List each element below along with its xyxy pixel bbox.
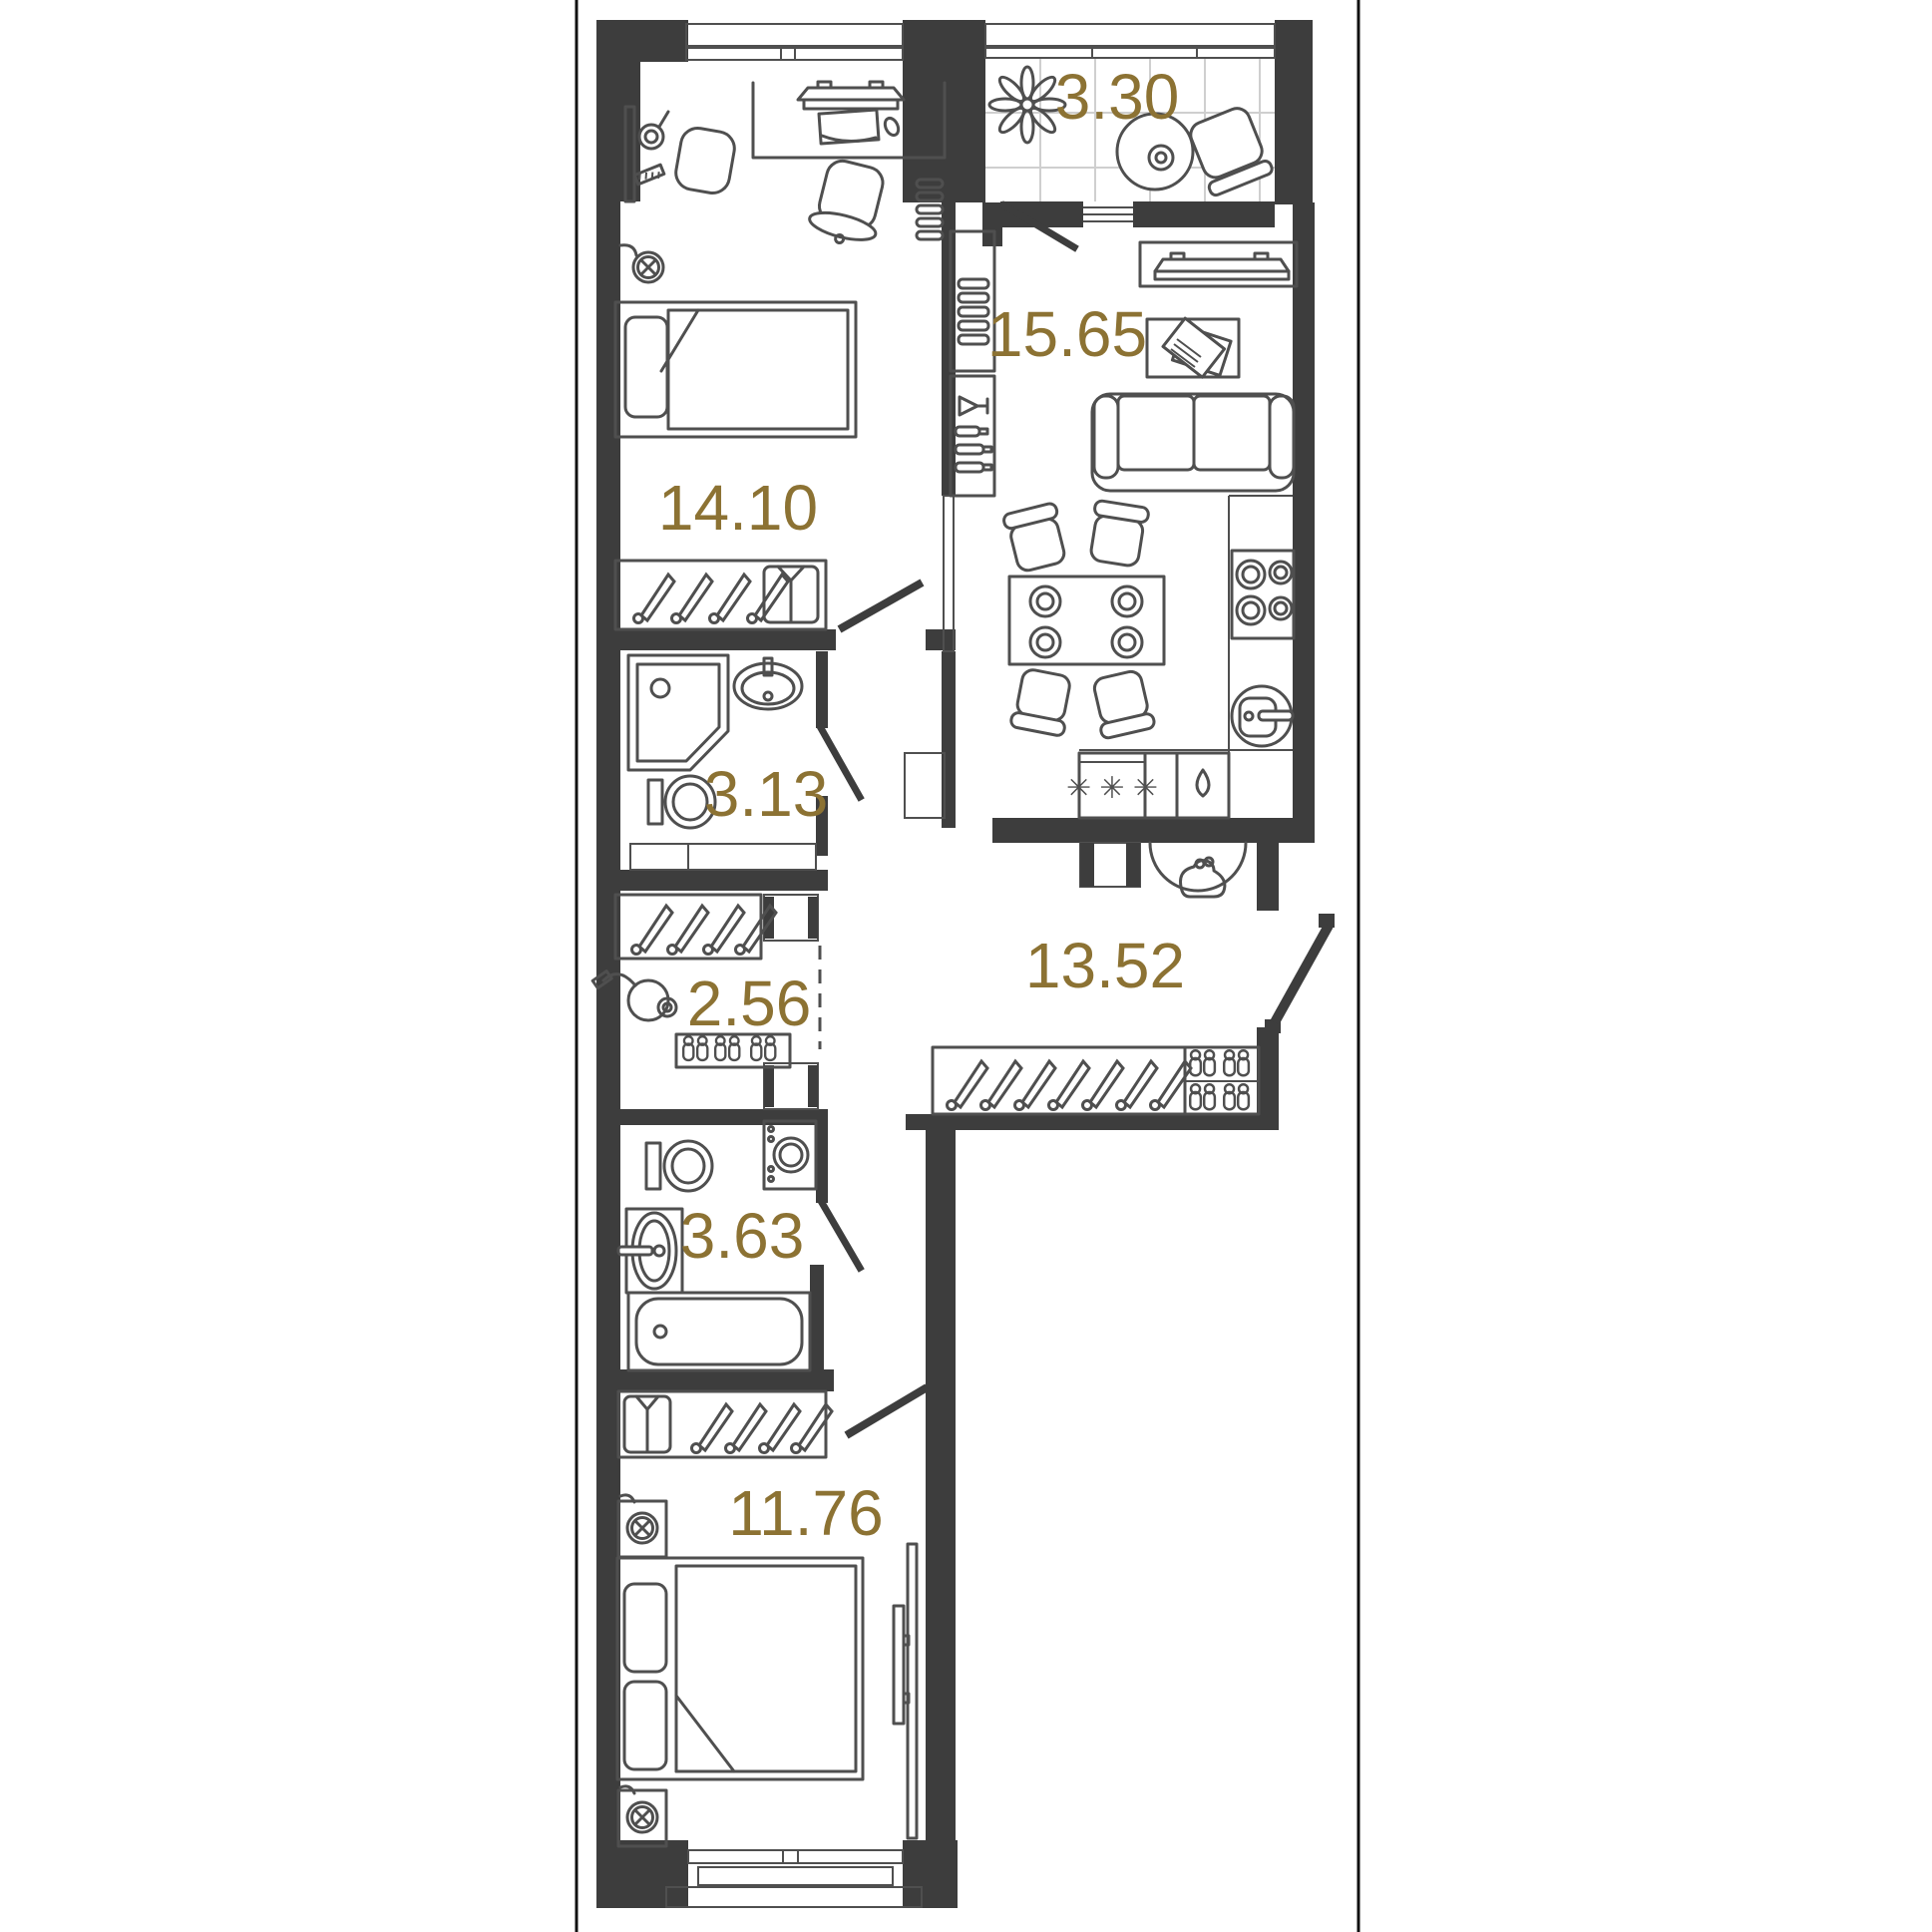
bedroom2-wardrobe-icon [618, 1391, 832, 1457]
area-label-loggia: 3.30 [1055, 61, 1180, 133]
desk-chair-icon [806, 157, 892, 251]
entry-niche [1150, 843, 1246, 897]
folded-shirt-icon [624, 1396, 670, 1452]
washing-machine-icon [764, 1121, 816, 1189]
storage-rail-icon [615, 895, 776, 959]
shower-sink-icon [734, 658, 802, 709]
bedroom1-drying-rack-icon [917, 180, 943, 239]
wall-hallway-bottom [906, 1114, 1279, 1130]
area-label-shower-room: 3.13 [704, 758, 829, 830]
wall-bedroom1-kitchen [942, 202, 956, 496]
bar-shelf-icon [951, 376, 994, 496]
partition-kitchen-column [944, 496, 954, 651]
wall-storage-bathroom [596, 1109, 828, 1125]
area-label-bedroom-1: 14.10 [658, 472, 818, 544]
coffee-table-icon [1147, 318, 1239, 377]
wall-bedroom1-bottom [596, 629, 836, 650]
pouf-icon [673, 126, 737, 195]
bedroom1-bed-icon [615, 302, 856, 437]
bathroom-door-leaf [821, 1201, 860, 1268]
bedroom1-door-leaf [843, 584, 919, 627]
room-area-labels: 14.10 3.30 15.65 3.13 2.56 13.52 3.63 11… [658, 61, 1185, 1549]
window-balcony [985, 24, 1275, 58]
tv-stand-icon [1140, 242, 1297, 286]
wall-balcony-kitchen [1000, 201, 1275, 227]
area-label-storage: 2.56 [687, 967, 812, 1039]
hallway-furniture [933, 1047, 1259, 1114]
area-label-kitchen-living: 15.65 [987, 298, 1147, 370]
bedroom1-furniture [615, 82, 945, 629]
entrance-door-leaf [1275, 926, 1329, 1022]
wall-bottom-left-block [596, 1840, 688, 1908]
wall-kitchen-bottom [992, 818, 1315, 843]
toilet-2-icon [646, 1141, 712, 1191]
kitchen-sink-icon [1232, 686, 1293, 746]
window-bedroom2 [666, 1850, 922, 1907]
nightstand-1-icon [618, 1495, 666, 1557]
coat-rack-icon [933, 1047, 1191, 1114]
floor-plan-page: ✳ ✳ ✳ [0, 0, 1932, 1932]
bedroom2-bed-icon [617, 1558, 863, 1779]
area-label-bathroom: 3.63 [680, 1200, 805, 1272]
tv-bedroom2-icon [894, 1544, 917, 1838]
bathroom-sink-icon [618, 1209, 682, 1293]
dining-table-icon [1002, 500, 1164, 739]
wall-balcony-right [1275, 20, 1313, 204]
window-balcony-door-sill [1083, 201, 1133, 227]
kitchen-counter-icon [1229, 496, 1293, 818]
nightstand-2-icon [618, 1786, 666, 1846]
floor-plan-drawing: ✳ ✳ ✳ [0, 0, 1932, 1932]
bedroom2-door-leaf [850, 1389, 924, 1433]
shower-tray-icon [628, 655, 728, 770]
wall-shower-storage [596, 870, 828, 891]
duct-shaft [905, 753, 945, 818]
bedroom2-furniture [617, 1391, 917, 1846]
shower-cabinet-icon [630, 844, 816, 870]
folded-shirt-icon [764, 567, 818, 622]
shoe-cabinet-icon [1185, 1047, 1259, 1114]
window-bedroom1 [686, 24, 903, 60]
bedroom1-lamp-icon [620, 245, 663, 282]
kitchen-hall-pass [1080, 843, 1140, 887]
stove-icon [1232, 551, 1294, 638]
area-label-bedroom-2: 11.76 [728, 1477, 883, 1549]
wall-bedroom2-right [926, 1130, 956, 1840]
newspaper-icon [1163, 318, 1231, 377]
plant-icon [989, 67, 1065, 143]
wall-bottom-right-block [903, 1840, 958, 1908]
sofa-icon [1092, 394, 1294, 491]
bathtub-icon [628, 1293, 810, 1370]
bedroom1-wardrobe-icon [615, 561, 826, 629]
page-border [577, 0, 1358, 1932]
wall-bathroom-bedroom2 [596, 1369, 834, 1391]
area-label-hallway: 13.52 [1025, 930, 1185, 1001]
wall-right-outer [1293, 202, 1315, 843]
